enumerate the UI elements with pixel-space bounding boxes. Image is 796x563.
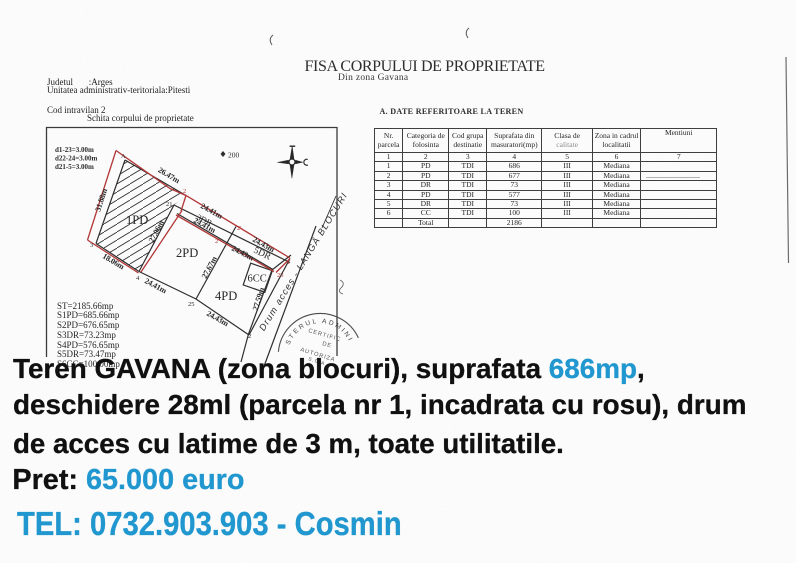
svg-text:A: A — [121, 153, 126, 160]
svg-text:25: 25 — [188, 301, 195, 308]
svg-text:31.88m: 31.88m — [93, 187, 109, 213]
svg-text:6CC: 6CC — [248, 274, 267, 285]
svg-text:2: 2 — [183, 188, 186, 195]
svg-text:Drum acces - LANGÄ BLOCURI: Drum acces - LANGÄ BLOCURI — [257, 191, 349, 333]
svg-text:1: 1 — [287, 259, 290, 266]
svg-text:2': 2' — [237, 225, 241, 232]
svg-text:23: 23 — [277, 272, 284, 279]
svg-text:27.67m: 27.67m — [200, 255, 219, 280]
svg-text:2PD: 2PD — [176, 246, 198, 260]
svg-text:d21-5=3.00m: d21-5=3.00m — [55, 163, 94, 171]
svg-text:4: 4 — [136, 275, 140, 282]
svg-text:4PD: 4PD — [215, 289, 237, 303]
svg-text:2: 2 — [248, 333, 251, 340]
svg-text:2'': 2'' — [215, 238, 221, 245]
svg-text:3: 3 — [90, 242, 93, 249]
svg-text:24.43m: 24.43m — [205, 309, 230, 329]
svg-text:DE: DE — [321, 341, 332, 349]
svg-text:d22-24=3.00m: d22-24=3.00m — [55, 155, 97, 163]
svg-text:1PD: 1PD — [126, 213, 148, 227]
svg-text:200: 200 — [228, 151, 240, 160]
svg-text:21: 21 — [166, 201, 173, 208]
svg-text:d1-23=3.00m: d1-23=3.00m — [55, 146, 94, 154]
